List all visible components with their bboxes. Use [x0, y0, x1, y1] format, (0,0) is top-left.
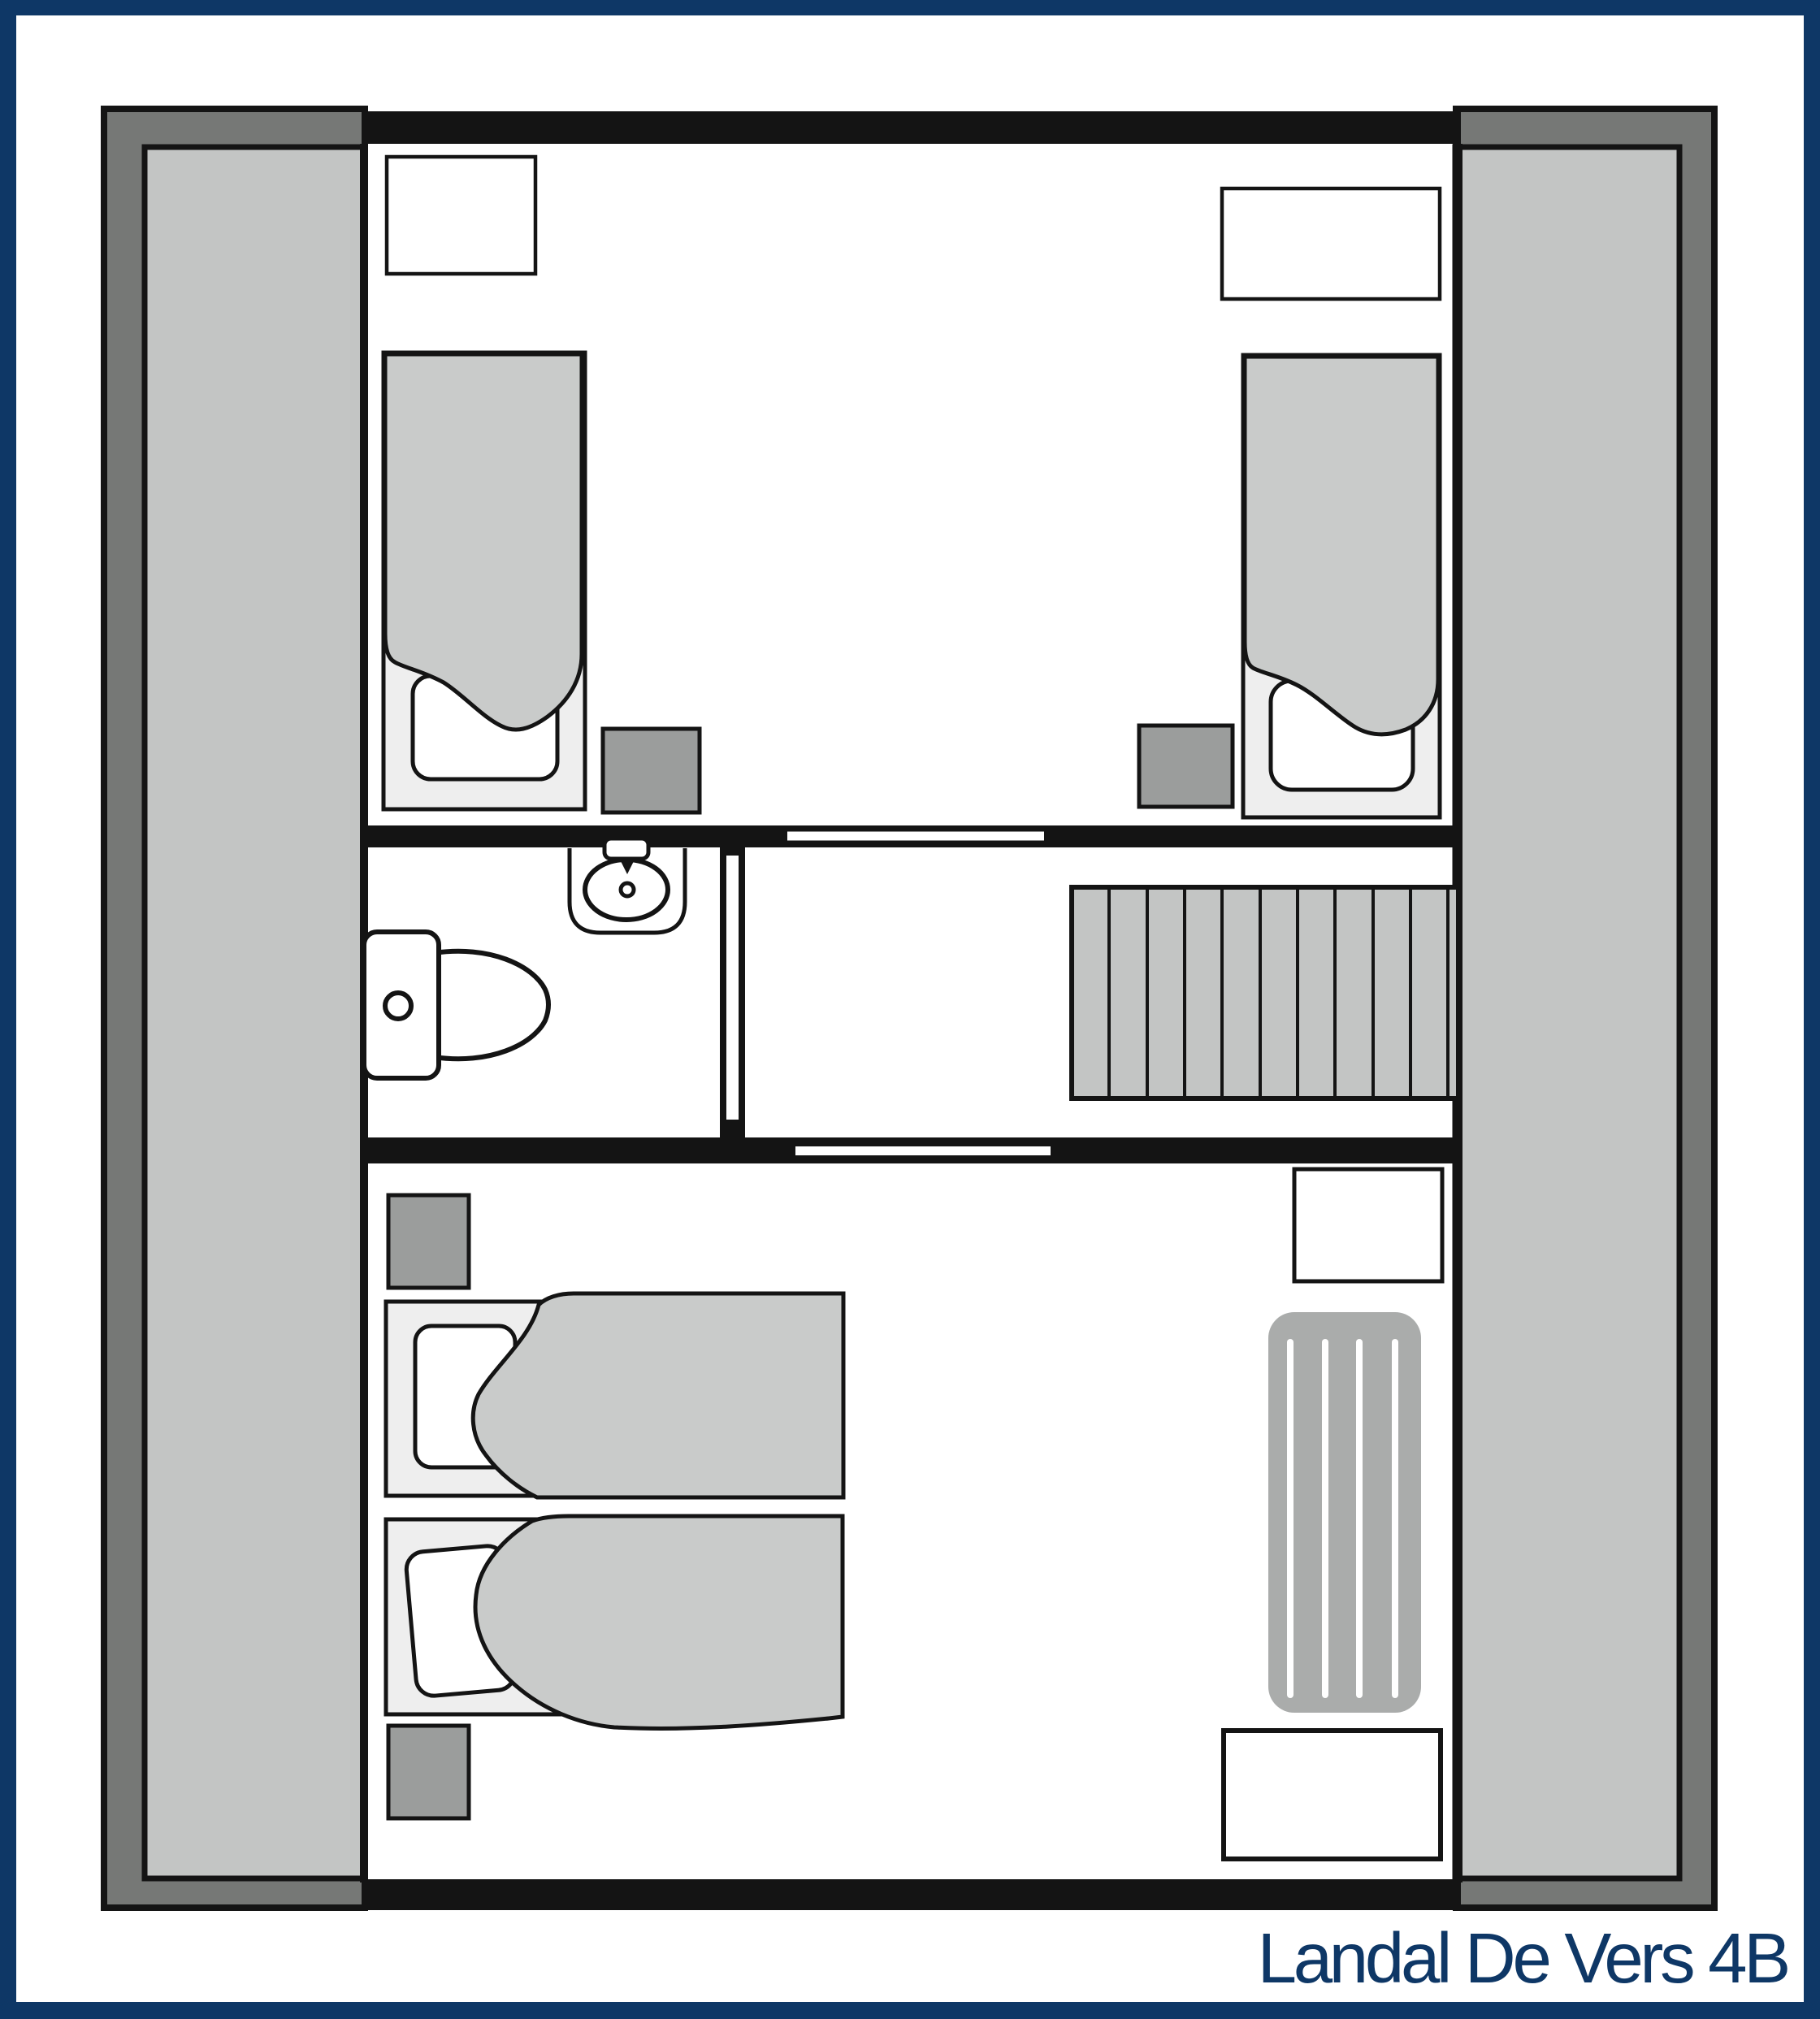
svg-text:Landal De Vers 4B: Landal De Vers 4B [1258, 1919, 1788, 1998]
